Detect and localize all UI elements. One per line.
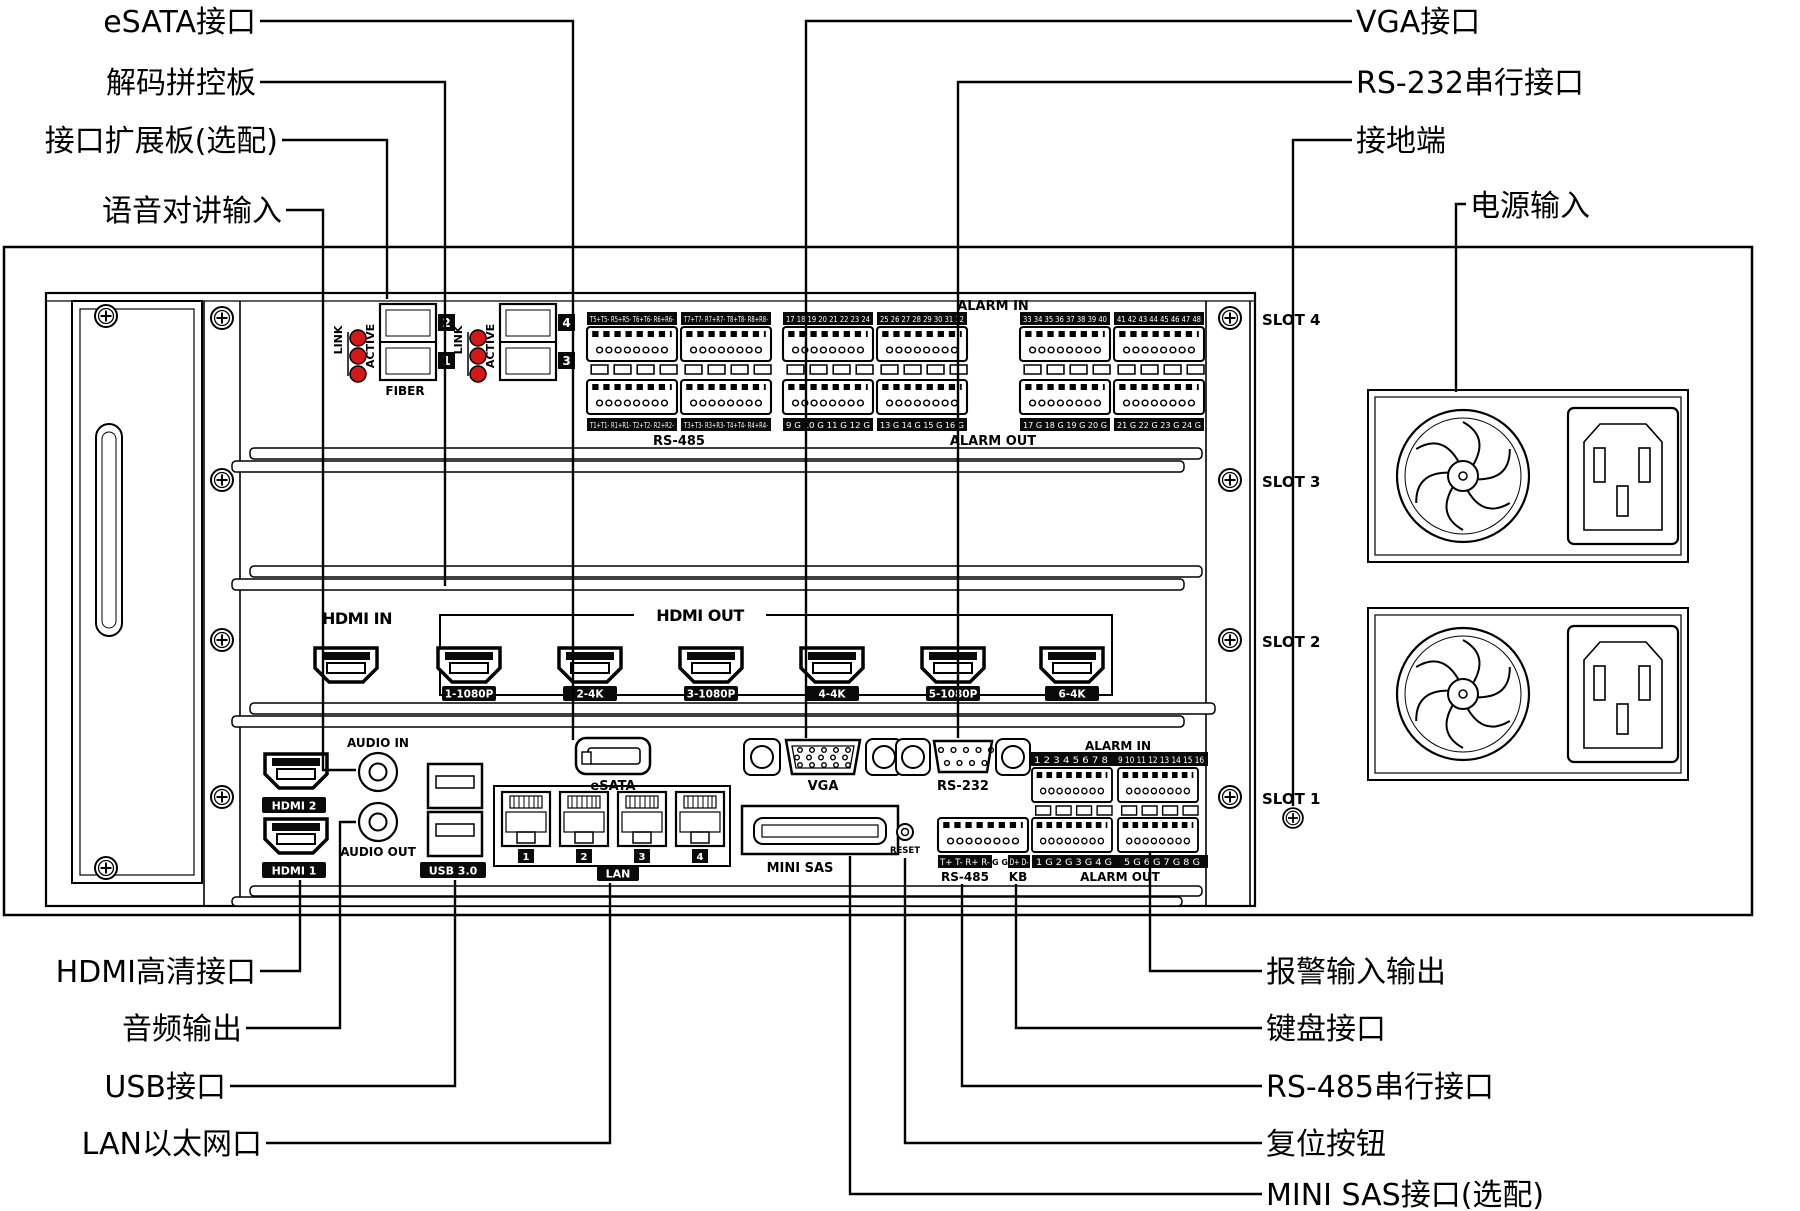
kb-pin-header: D+ D- — [1010, 858, 1029, 868]
lan-number: 3 — [639, 852, 646, 863]
screw-icon — [1219, 469, 1241, 491]
esata-port — [576, 738, 650, 774]
power-supply-1 — [1368, 390, 1688, 562]
hdmi-out-port-label: 2-4K — [576, 689, 604, 701]
callout-label: RS-485串行接口 — [1266, 1070, 1494, 1105]
audio-in-label: AUDIO IN — [347, 736, 409, 750]
page-background — [0, 0, 1800, 1211]
terminal-connector — [1118, 818, 1198, 852]
hdmi-out-port-label: 3-1080P — [687, 689, 736, 701]
alarm-in-numbers: 1 2 3 4 5 6 7 8 — [1034, 756, 1108, 766]
screw-icon — [211, 629, 233, 651]
alarm-out-numbers: 1 G 2 G 3 G 4 G — [1036, 858, 1112, 868]
terminal-header: T3+T3- R3+R3- T4+T4- R4+R4- — [683, 421, 768, 430]
terminal-header: T5+T5- R5+R5- T6+T6- R6+R6- — [589, 315, 674, 324]
rs485-pin-header: T+ T- R+ R- — [939, 858, 990, 868]
vga-label: VGA — [808, 779, 839, 794]
hdmi1-port — [265, 819, 327, 853]
callout-label: 音频输出 — [122, 1012, 242, 1047]
fiber-label: FIBER — [385, 384, 424, 398]
terminal-connector — [1032, 818, 1112, 852]
callout-label: 语音对讲输入 — [102, 194, 282, 229]
hdmi2-port — [265, 754, 327, 788]
screw-icon — [95, 305, 117, 327]
callout-label: LAN以太网口 — [82, 1127, 262, 1162]
kb-label: KB — [1009, 870, 1027, 884]
screw-icon — [1219, 307, 1241, 329]
mini-sas-port — [742, 806, 898, 854]
hdmi1-label: HDMI 1 — [272, 865, 317, 878]
callout-label: MINI SAS接口(选配) — [1266, 1178, 1544, 1211]
rj45-port — [502, 792, 550, 846]
hdmi-out-port — [680, 648, 742, 682]
lan-number: 4 — [697, 852, 704, 863]
lan-number: 2 — [581, 852, 588, 863]
terminal-header: T7+T7- R7+R7- T8+T8- R8+R8- — [683, 315, 768, 324]
gnd-pin-header: G G — [992, 858, 1008, 867]
hdmi-out-port-label: 1-1080P — [445, 689, 494, 701]
callout-label: 电源输入 — [1470, 189, 1590, 224]
terminal-header: 9 G 10 G 11 G 12 G — [786, 421, 870, 430]
audio-out-jack — [359, 803, 397, 841]
alarm-in-title: ALARM IN — [1085, 739, 1151, 753]
callout-label: USB接口 — [104, 1070, 226, 1105]
rs232-label: RS-232 — [937, 779, 989, 794]
reset-button — [897, 824, 913, 840]
ground-screw — [1283, 808, 1303, 828]
audio-in-jack — [359, 753, 397, 791]
terminal-header: 13 G 14 G 15 G 16 G — [880, 421, 964, 430]
active-label: ACTIVE — [484, 324, 497, 368]
screw-icon — [95, 857, 117, 879]
esata-label: eSATA — [590, 779, 635, 794]
rs485-kb-connector — [938, 818, 1028, 852]
hdmi-out-port — [801, 648, 863, 682]
usb-label: USB 3.0 — [429, 865, 478, 878]
terminal-header: 17 G 18 G 19 G 20 G — [1023, 421, 1107, 430]
slot-label-4: SLOT 4 — [1262, 311, 1320, 329]
hdmi-out-port — [438, 648, 500, 682]
hdmi-out-port — [922, 648, 984, 682]
callout-label: 解码拼控板 — [106, 66, 256, 101]
terminal-header: 21 G 22 G 23 G 24 G — [1117, 421, 1201, 430]
terminal-connector — [1032, 768, 1112, 802]
callout-label: RS-232串行接口 — [1356, 66, 1584, 101]
callout-label: 接口扩展板(选配) — [45, 124, 278, 159]
screw-icon — [211, 307, 233, 329]
hdmi-out-port — [1041, 648, 1103, 682]
hdmi2-label: HDMI 2 — [272, 800, 317, 813]
audio-out-label: AUDIO OUT — [340, 845, 416, 859]
fiber-port-number: 4 — [562, 316, 570, 330]
alarm-in-numbers: 9 10 11 12 13 14 15 16 — [1118, 756, 1204, 766]
power-supply-2 — [1368, 608, 1688, 780]
mini-sas-label: MINI SAS — [767, 861, 834, 876]
alarm-in-title: ALARM IN — [957, 299, 1029, 314]
fiber-port-number: 1 — [442, 354, 450, 368]
hdmi-in-port — [315, 648, 377, 682]
terminal-header: 33 34 35 36 37 38 39 40 — [1023, 315, 1107, 324]
terminal-header: 41 42 43 44 45 46 47 48 — [1117, 315, 1201, 324]
alarm-out-numbers: 5 G 6 G 7 G 8 G — [1124, 858, 1200, 868]
hdmi-out-port-label: 4-4K — [818, 689, 846, 701]
active-label: ACTIVE — [364, 324, 377, 368]
rs485-section-label: RS-485 — [653, 434, 705, 449]
callout-label: 复位按钮 — [1266, 1127, 1386, 1162]
hdmi-out-port-label: 6-4K — [1058, 689, 1086, 701]
screw-icon — [211, 469, 233, 491]
hdmi-in-label: HDMI IN — [322, 609, 392, 628]
terminal-header: T1+T1- R1+R1- T2+T2- R2+R2- — [589, 421, 674, 430]
vga-port — [744, 739, 902, 775]
callout-label: 键盘接口 — [1266, 1012, 1386, 1047]
screw-icon — [211, 786, 233, 808]
alarm-out-label: ALARM OUT — [1080, 870, 1161, 884]
callout-label: VGA接口 — [1356, 5, 1480, 40]
link-label: LINK — [332, 325, 345, 354]
terminal-header: 25 26 27 28 29 30 31 32 — [880, 315, 964, 324]
reset-label: RESET — [890, 846, 920, 856]
screw-icon — [1219, 629, 1241, 651]
rs232-port — [896, 739, 1030, 775]
terminal-connector — [1118, 768, 1198, 802]
lan-label: LAN — [606, 868, 631, 881]
slot-label-2: SLOT 2 — [1262, 633, 1320, 651]
hdmi-out-label: HDMI OUT — [656, 606, 744, 625]
screw-icon — [1219, 786, 1241, 808]
rj45-port — [676, 792, 724, 846]
fiber-port-number: 3 — [562, 354, 570, 368]
slot-label-3: SLOT 3 — [1262, 473, 1320, 491]
alarm-out-section-label: ALARM OUT — [950, 434, 1036, 449]
terminal-header: 17 18 19 20 21 22 23 24 — [786, 315, 870, 324]
rj45-port — [618, 792, 666, 846]
slot-label-1: SLOT 1 — [1262, 790, 1320, 808]
hdmi-out-port-label: 5-1080P — [929, 689, 978, 701]
rj45-port — [560, 792, 608, 846]
fiber-port-number: 2 — [442, 316, 450, 330]
diagram-canvas: SLOT 4 SLOT 3 SLOT 2 SLOT 1 LINK ACTIVE … — [0, 0, 1800, 1211]
callout-label: HDMI高清接口 — [56, 955, 256, 990]
lan-number: 1 — [523, 852, 530, 863]
link-label: LINK — [452, 325, 465, 354]
hdmi-out-port — [559, 648, 621, 682]
rear-panel-diagram: SLOT 4 SLOT 3 SLOT 2 SLOT 1 LINK ACTIVE … — [0, 0, 1800, 1211]
callout-label: 接地端 — [1356, 124, 1446, 159]
callout-label: 报警输入输出 — [1266, 955, 1446, 990]
rs485-label: RS-485 — [941, 870, 989, 884]
callout-label: eSATA接口 — [103, 5, 256, 40]
